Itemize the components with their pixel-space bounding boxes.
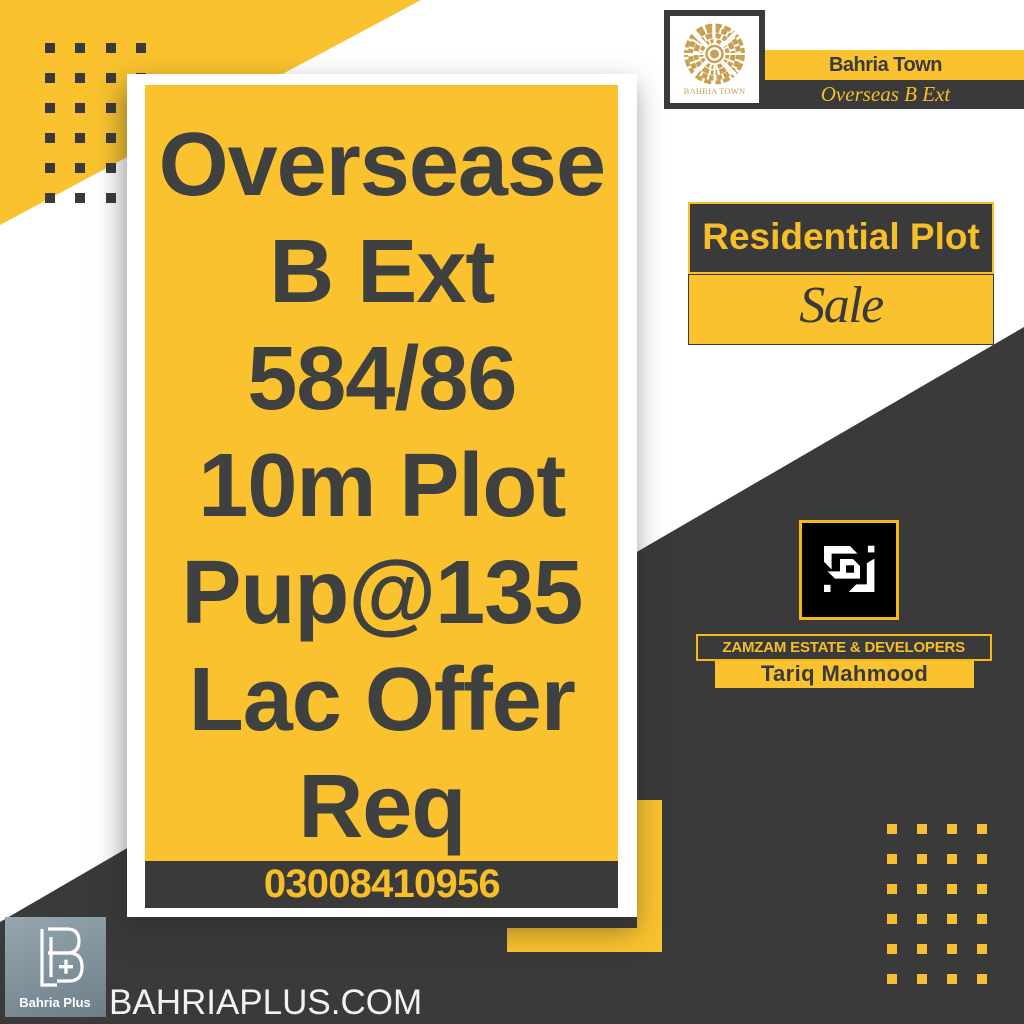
svg-text:Bahria Plus: Bahria Plus — [19, 995, 91, 1010]
svg-text:BAHRIA TOWN: BAHRIA TOWN — [684, 86, 746, 96]
